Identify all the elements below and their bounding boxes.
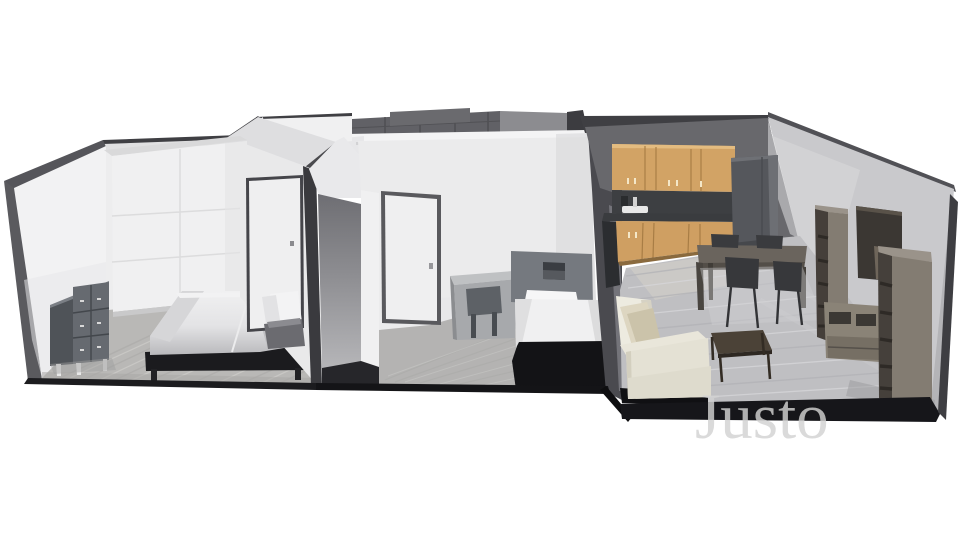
svg-text:Justo: Justo bbox=[695, 381, 829, 453]
